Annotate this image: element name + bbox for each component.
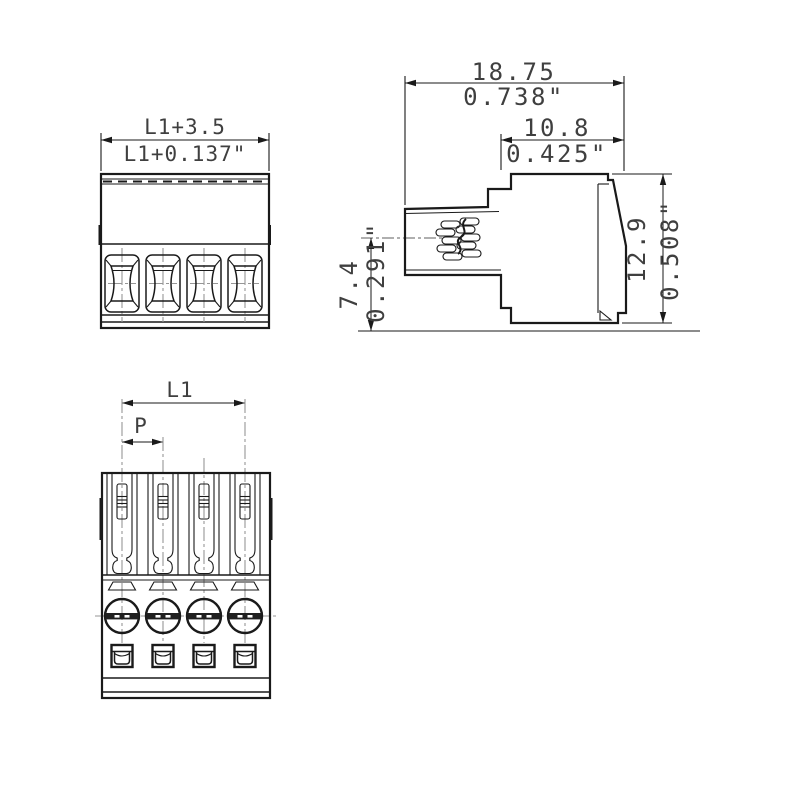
side-overall-height-metric: 12.9 (623, 215, 651, 283)
pole-centerlines (95, 399, 277, 643)
side-body (405, 174, 626, 323)
technical-drawing: L1+3.5 L1+0.137" 18.75 0.7 (0, 0, 800, 800)
arrowhead (122, 439, 133, 445)
side-view: 18.75 0.738" 10.8 0.425" 7.4 0.291" 12.9 (335, 58, 700, 331)
top-view: L1 P (95, 378, 277, 698)
arrowhead (613, 137, 624, 143)
arrowhead (613, 80, 624, 86)
arrowhead (152, 439, 163, 445)
side-lug (99, 225, 102, 245)
terminal-cavity (146, 248, 180, 322)
side-lug (269, 225, 272, 245)
side-entry-height-inch: 0.291" (362, 221, 390, 323)
spring-clamp-symbol (436, 218, 481, 260)
top-body (100, 473, 273, 698)
top-length-dimension: L1 (122, 378, 245, 406)
arrowhead (660, 174, 666, 185)
side-body-width-inch: 0.425" (506, 140, 608, 168)
side-profile (405, 174, 626, 323)
side-overall-height-inch: 0.508" (656, 199, 684, 301)
front-view: L1+3.5 L1+0.137" (99, 115, 272, 328)
front-width-dimension: L1+3.5 L1+0.137" (101, 115, 269, 171)
front-width-metric: L1+3.5 (144, 115, 226, 139)
top-pitch-dimension: P (122, 414, 163, 445)
arrowhead (258, 137, 269, 143)
arrowhead (234, 400, 245, 406)
side-lug (100, 498, 103, 540)
side-overall-width-inch: 0.738" (463, 83, 565, 111)
side-overall-width-metric: 18.75 (472, 58, 557, 86)
arrowhead (122, 400, 133, 406)
top-length-label: L1 (166, 378, 193, 402)
side-lug (270, 498, 273, 540)
side-body-width-metric: 10.8 (523, 114, 591, 142)
arrowhead (101, 137, 112, 143)
terminal-cavity (228, 248, 262, 322)
side-body-width-dimension: 10.8 0.425" (501, 114, 624, 170)
terminal-cavity (187, 248, 221, 322)
top-pitch-label: P (134, 414, 148, 438)
side-overall-height-dimension: 12.9 0.508" (612, 174, 684, 323)
front-body (99, 174, 272, 328)
arrowhead (405, 80, 416, 86)
side-entry-height-metric: 7.4 (335, 259, 363, 310)
terminal-cavity (105, 248, 139, 322)
side-overall-width-dimension: 18.75 0.738" (405, 58, 624, 205)
drawing-sheet: L1+3.5 L1+0.137" 18.75 0.7 (0, 0, 800, 800)
arrowhead (660, 312, 666, 323)
latch-bevel (600, 311, 611, 320)
front-width-inch: L1+0.137" (124, 142, 247, 166)
